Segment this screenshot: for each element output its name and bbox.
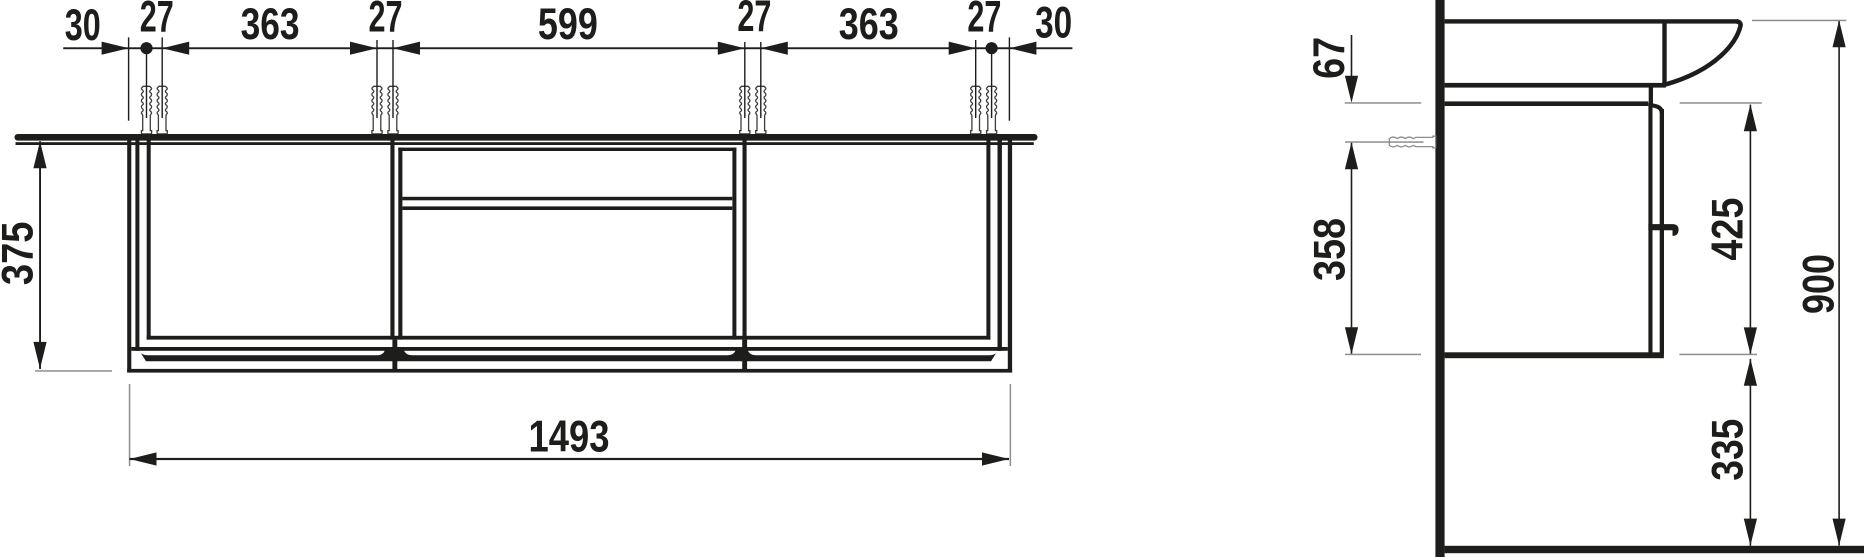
svg-text:67: 67	[1305, 37, 1354, 79]
svg-text:335: 335	[1704, 419, 1753, 481]
svg-text:363: 363	[241, 0, 300, 49]
svg-text:599: 599	[538, 0, 598, 49]
svg-text:30: 30	[65, 1, 101, 50]
svg-text:1493: 1493	[529, 413, 610, 462]
svg-text:27: 27	[369, 0, 403, 42]
svg-text:30: 30	[1035, 0, 1072, 48]
svg-text:363: 363	[839, 0, 899, 49]
svg-text:27: 27	[737, 0, 771, 41]
svg-text:425: 425	[1703, 198, 1752, 261]
svg-text:27: 27	[967, 0, 1001, 41]
svg-text:27: 27	[140, 0, 174, 42]
svg-text:900: 900	[1795, 254, 1844, 314]
svg-text:358: 358	[1306, 218, 1355, 281]
svg-text:375: 375	[0, 222, 42, 286]
